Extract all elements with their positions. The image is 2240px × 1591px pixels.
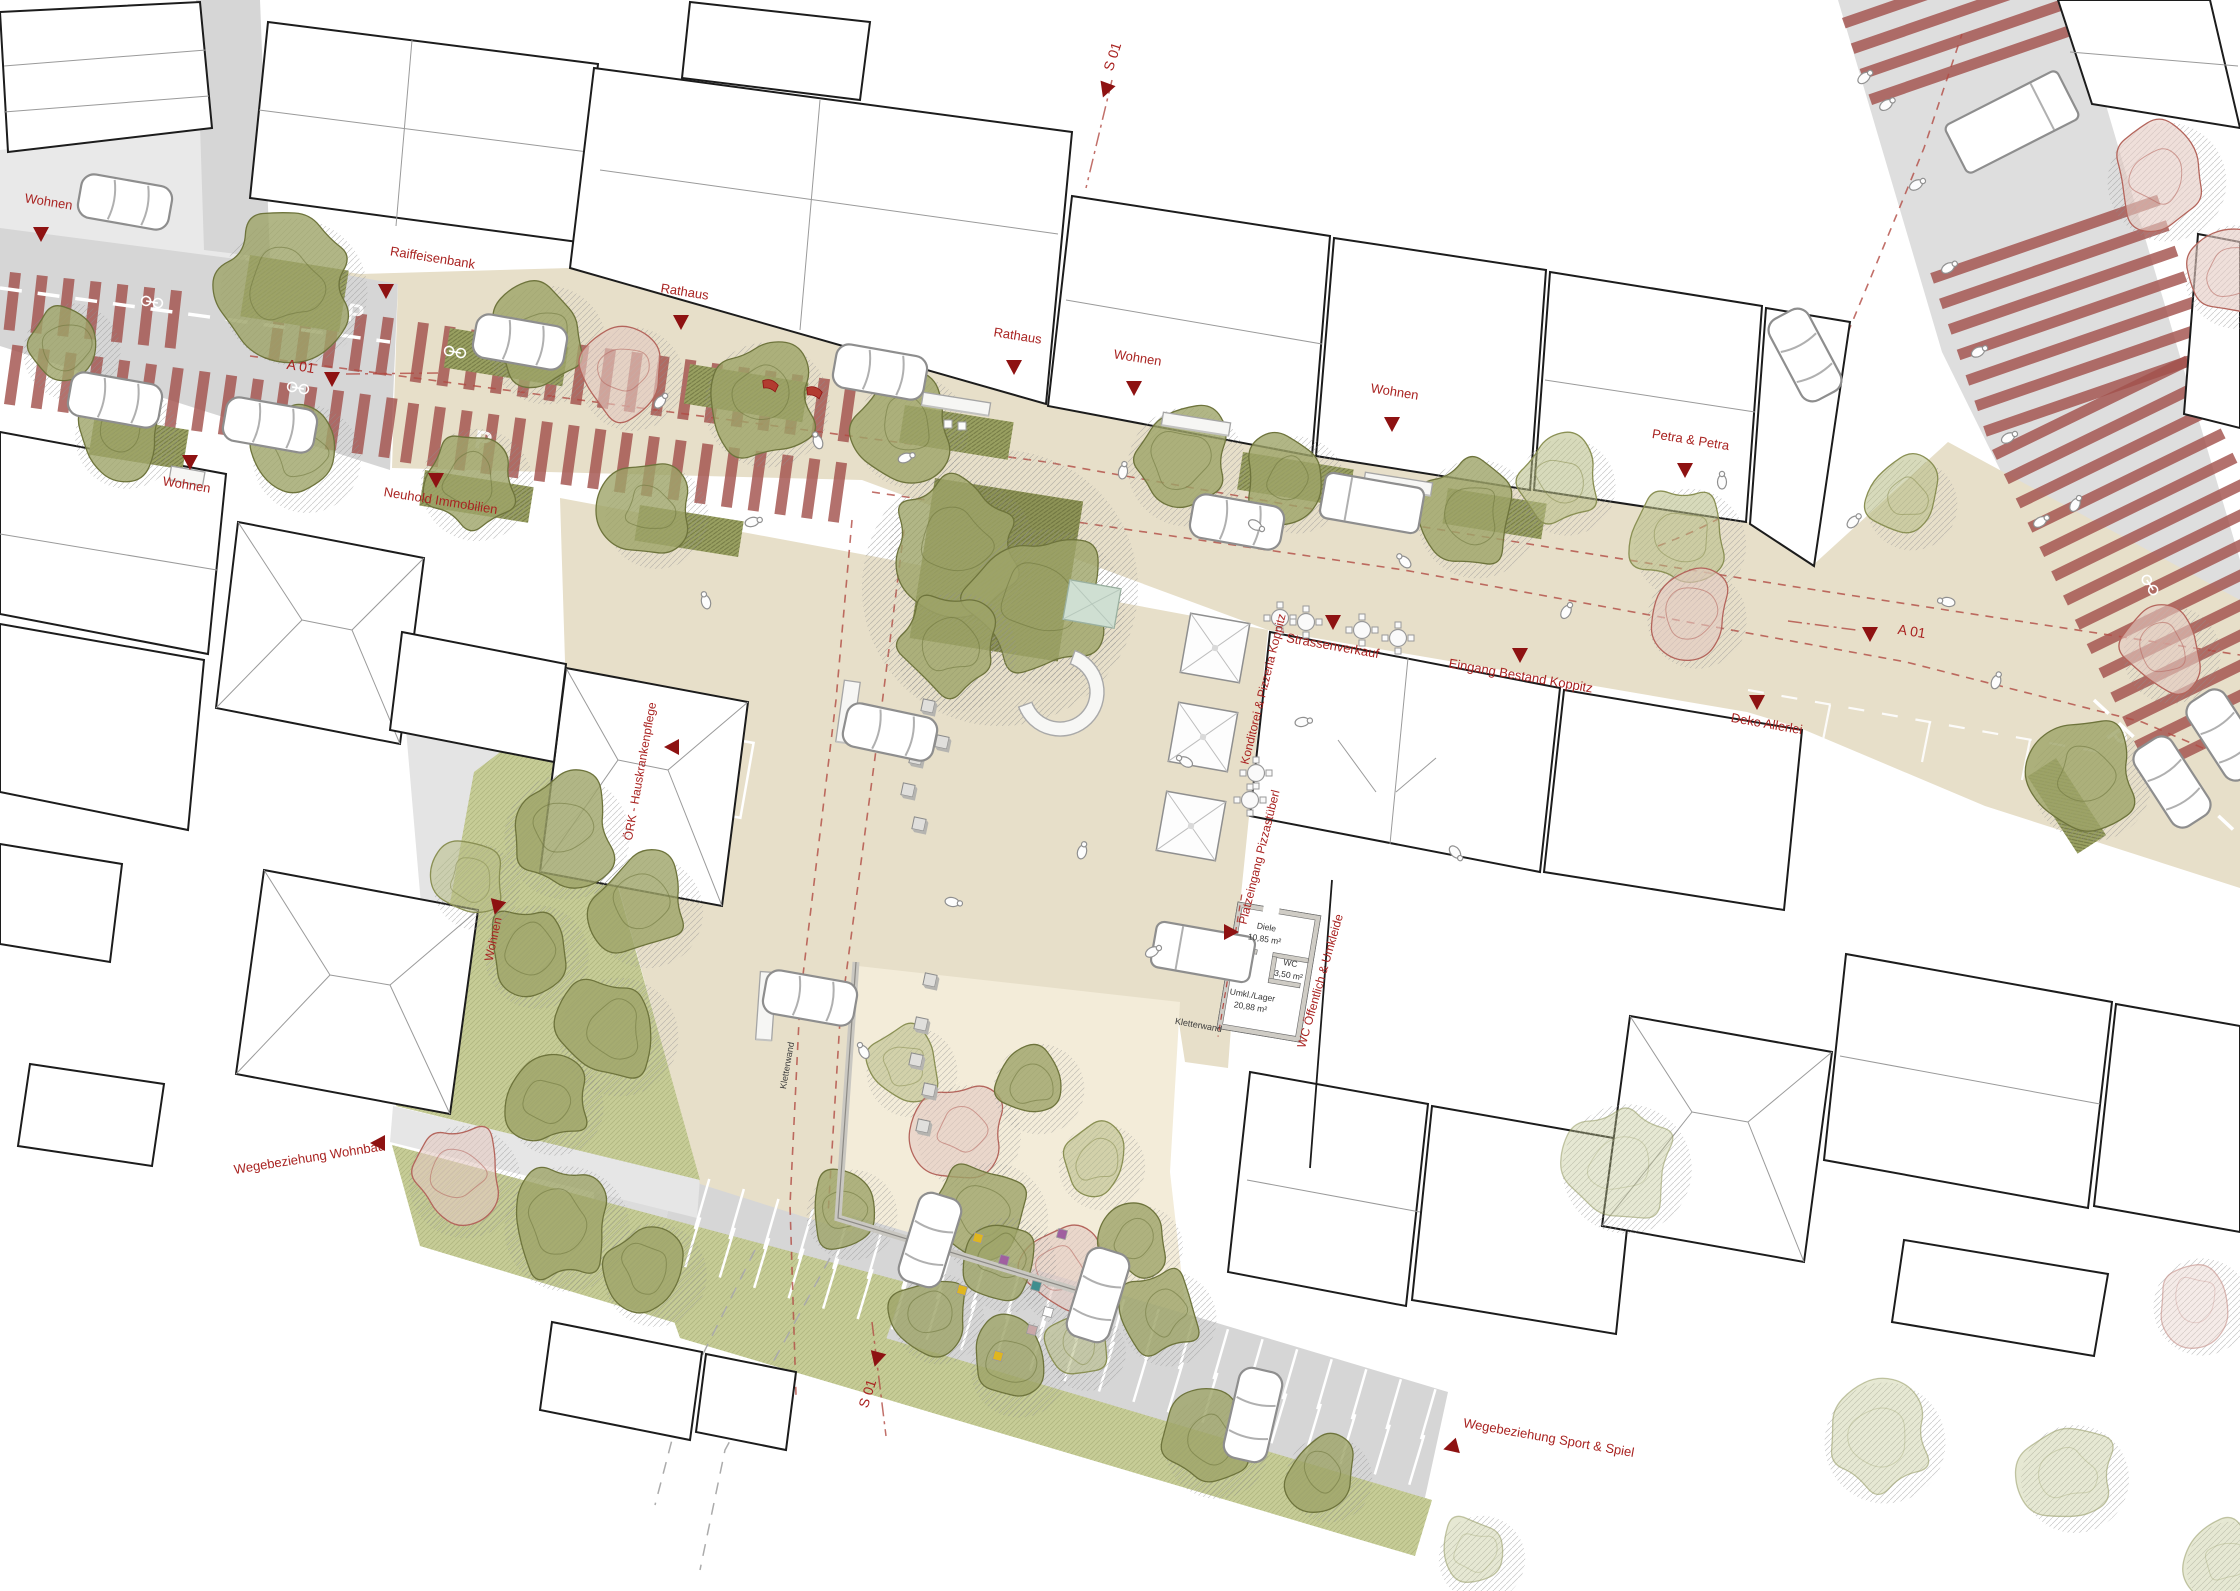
building-outline (18, 1064, 164, 1166)
site-plan-svg: PPPP WohnenRaiffeisenbankRathausRathausW… (0, 0, 2240, 1591)
wheel (1883, 322, 1895, 334)
building (1824, 954, 2112, 1208)
table-top (1242, 792, 1259, 809)
play-element-icon (1026, 1324, 1037, 1335)
tree-canopy (2161, 1265, 2228, 1349)
building (0, 2, 212, 152)
tree-icon (994, 1044, 1085, 1135)
building (0, 844, 122, 962)
person-head (1121, 461, 1127, 467)
chair-icon (1395, 648, 1401, 654)
chair-icon (1253, 783, 1259, 789)
building-outline (1228, 1072, 1428, 1306)
chair-icon (1395, 622, 1401, 628)
person-icon (744, 515, 763, 528)
chair-icon (1316, 619, 1322, 625)
building (1316, 238, 1546, 490)
person-head (757, 517, 763, 523)
tree-icon (603, 1223, 707, 1327)
play-element-icon (956, 1284, 967, 1295)
pavilion-icon (1063, 580, 1121, 628)
person-head (1937, 598, 1943, 604)
market-stall-icon (1156, 791, 1226, 861)
building-outline (1316, 238, 1546, 490)
person-head (957, 900, 963, 906)
stall-post (1212, 645, 1219, 652)
chair-icon (1234, 797, 1240, 803)
stall-post (1200, 734, 1207, 741)
market-stall-icon (1180, 613, 1250, 683)
building-outline (0, 624, 204, 830)
chair-icon (1372, 627, 1378, 633)
building-outline (250, 22, 598, 242)
play-element-icon (972, 1232, 983, 1243)
play-element-icon (1056, 1228, 1067, 1239)
chair-icon (1264, 615, 1270, 621)
plan-label-sport-spiel: Wegebeziehung Sport & Spiel (1462, 1415, 1635, 1460)
tree-icon (2015, 1425, 2129, 1533)
blossom-tree-icon (2153, 1258, 2240, 1355)
building (1228, 1072, 1428, 1306)
triangle-marker-icon (1441, 1438, 1460, 1457)
chair-icon (1253, 757, 1259, 763)
plan-label-raiffeisenbank: Raiffeisenbank (389, 243, 477, 271)
blossom-tree-icon (2108, 119, 2227, 241)
building (250, 22, 598, 242)
building-outline (1824, 954, 2112, 1208)
blossom-tree-icon (409, 1126, 521, 1238)
building (1892, 1240, 2108, 1356)
chair-icon (1346, 627, 1352, 633)
tree-icon (421, 429, 533, 541)
bench-shadow (756, 1039, 772, 1040)
chair-icon (1247, 784, 1253, 790)
tree-canopy (517, 1167, 607, 1279)
building (0, 624, 204, 830)
person-icon (1718, 471, 1727, 489)
tree-icon (961, 1217, 1056, 1312)
chair-icon (1290, 619, 1296, 625)
market-stall-icon (1168, 702, 1238, 772)
wheel (1889, 332, 1901, 344)
guide-dash-red (1086, 80, 1112, 188)
cube (901, 783, 915, 797)
tree-icon (2183, 1517, 2240, 1591)
cube (923, 973, 937, 987)
person-head (1307, 718, 1313, 724)
cube (914, 1017, 928, 1031)
cube (922, 1083, 936, 1097)
play-element-icon (998, 1254, 1009, 1265)
tree-canopy (2183, 1517, 2240, 1591)
chair-icon (958, 422, 966, 430)
plan-label-s01-north: S 01 (1100, 40, 1124, 73)
site-plan-stage: PPPP WohnenRaiffeisenbankRathausRathausW… (0, 0, 2240, 1591)
building (540, 1322, 702, 1440)
building-outline (0, 2, 212, 152)
person-head (1081, 841, 1087, 847)
tree-canopy (596, 464, 688, 553)
tree-icon (1825, 1378, 1946, 1503)
chair-icon (1240, 770, 1246, 776)
tree-icon (807, 1169, 898, 1260)
chair-icon (1303, 606, 1309, 612)
cube (916, 1119, 930, 1133)
bicycle-icon (1883, 322, 1901, 345)
chair-icon (944, 420, 952, 428)
parking-stripe (4, 345, 23, 406)
tree-icon (704, 342, 829, 468)
cube (912, 817, 926, 831)
chair-icon (1266, 770, 1272, 776)
table-top (1298, 614, 1315, 631)
chair-icon (1408, 635, 1414, 641)
play-element-icon (1030, 1280, 1041, 1291)
person-head (701, 591, 707, 597)
play-element-icon (1042, 1306, 1053, 1317)
building-outline (1892, 1240, 2108, 1356)
building-outline (540, 1322, 702, 1440)
building (696, 1354, 796, 1450)
building (18, 1064, 164, 1166)
tree-icon (1439, 1516, 1525, 1591)
chair-icon (1382, 635, 1388, 641)
tree-canopy (2015, 1428, 2113, 1516)
chair-icon (1277, 602, 1283, 608)
table-top (1390, 630, 1407, 647)
table-top (1248, 765, 1265, 782)
cube (909, 1053, 923, 1067)
chair-icon (1359, 614, 1365, 620)
stall-post (1188, 823, 1195, 830)
building-outline (0, 844, 122, 962)
building-outline (2094, 1004, 2240, 1232)
triangle-marker-icon (1095, 81, 1115, 101)
building-outline (696, 1354, 796, 1450)
table-top (1354, 622, 1371, 639)
person-head (1719, 471, 1724, 476)
play-element-icon (992, 1350, 1003, 1361)
chair-icon (1247, 810, 1253, 816)
building (2094, 1004, 2240, 1232)
plan-label-wegebeziehung-wohnbau: Wegebeziehung Wohnbau (233, 1138, 386, 1177)
cube (921, 699, 935, 713)
